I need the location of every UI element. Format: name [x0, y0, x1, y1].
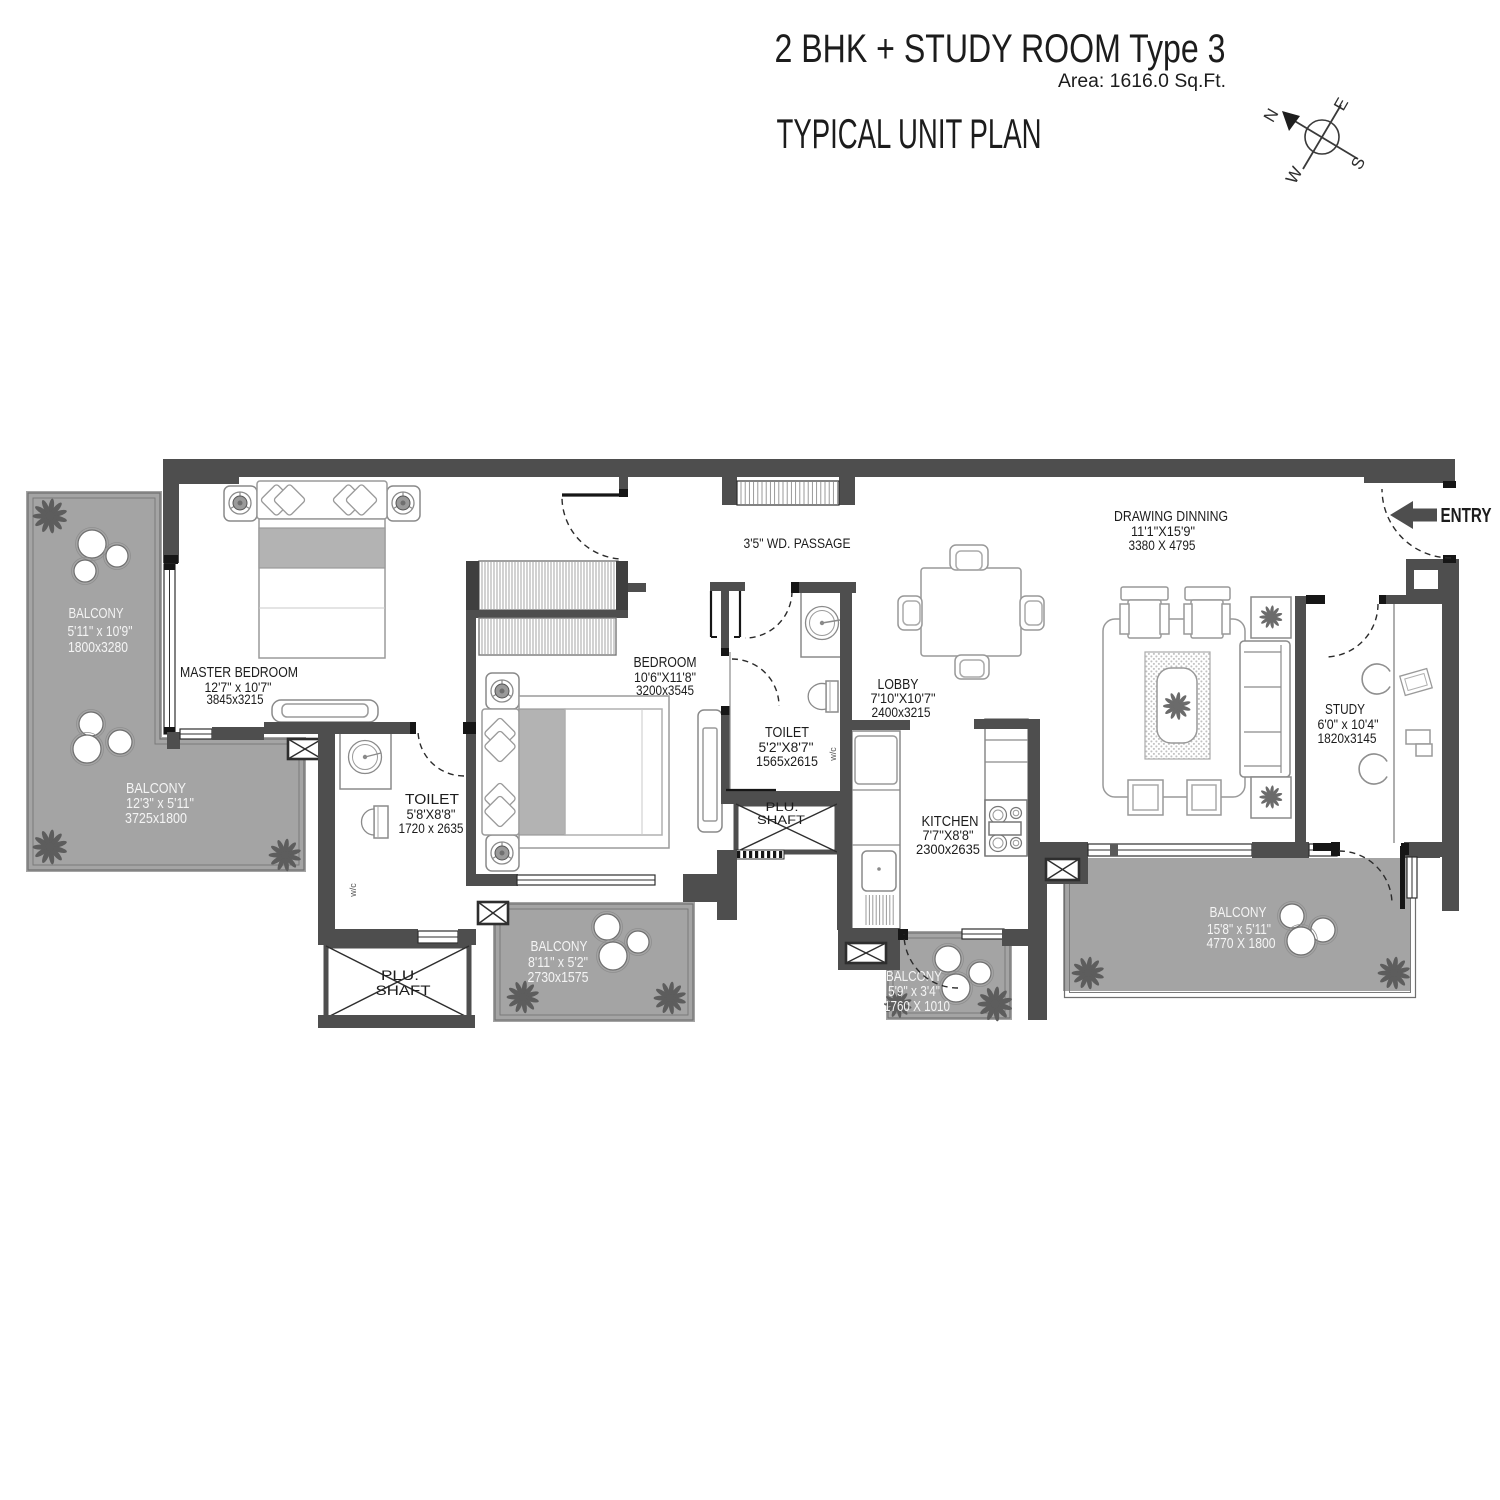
svg-text:5'11" x 10'9": 5'11" x 10'9"	[68, 623, 133, 640]
svg-text:w/c: w/c	[828, 747, 838, 762]
svg-text:1760 X 1010: 1760 X 1010	[884, 998, 950, 1015]
svg-text:1565x2615: 1565x2615	[756, 753, 818, 769]
svg-text:3200x3545: 3200x3545	[636, 682, 694, 698]
svg-text:1720 x 2635: 1720 x 2635	[399, 820, 464, 836]
svg-text:PLU.: PLU.	[766, 800, 799, 814]
svg-text:SHAFT: SHAFT	[757, 813, 806, 827]
svg-text:3380 X 4795: 3380 X 4795	[1129, 537, 1196, 553]
svg-text:SHAFT: SHAFT	[376, 982, 432, 998]
svg-text:BALCONY: BALCONY	[531, 938, 588, 955]
svg-text:2 BHK + STUDY ROOM Type 3: 2 BHK + STUDY ROOM Type 3	[775, 27, 1226, 71]
svg-text:1800x3280: 1800x3280	[68, 639, 128, 656]
svg-text:1820x3145: 1820x3145	[1318, 730, 1377, 746]
svg-text:3845x3215: 3845x3215	[207, 691, 264, 707]
svg-text:2730x1575: 2730x1575	[528, 969, 589, 986]
svg-text:BALCONY: BALCONY	[69, 605, 124, 622]
svg-text:3'5" WD. PASSAGE: 3'5" WD. PASSAGE	[744, 535, 851, 551]
svg-text:3725x1800: 3725x1800	[125, 810, 187, 827]
svg-text:4770 X 1800: 4770 X 1800	[1207, 935, 1276, 952]
svg-text:Area: 1616.0 Sq.Ft.: Area: 1616.0 Sq.Ft.	[1058, 71, 1226, 92]
svg-text:TYPICAL UNIT PLAN: TYPICAL UNIT PLAN	[777, 110, 1042, 157]
svg-text:PLU.: PLU.	[381, 967, 419, 983]
svg-text:ENTRY: ENTRY	[1441, 505, 1492, 527]
svg-text:2300x2635: 2300x2635	[916, 841, 980, 857]
svg-text:2400x3215: 2400x3215	[872, 704, 931, 720]
svg-text:BALCONY: BALCONY	[1210, 904, 1267, 921]
svg-text:w/c: w/c	[348, 883, 358, 898]
